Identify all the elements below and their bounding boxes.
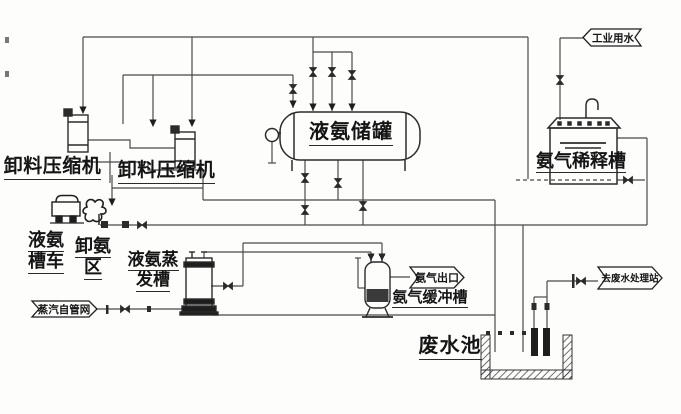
buffer-tank-shape: [362, 255, 393, 317]
to-wastewater-label: 去废水处理站: [601, 273, 659, 285]
submersible-pump-icon: [531, 328, 538, 356]
label-dilution-tank: 氨气稀释槽: [529, 152, 633, 173]
label-buffer-tank: 氨气缓冲槽: [391, 290, 469, 308]
label-evaporator: 液氨蒸 发槽: [121, 251, 185, 292]
industrial-water-label: 工业用水: [592, 32, 634, 45]
scan-artifacts: [5, 37, 9, 77]
compressor-left-shape: [64, 109, 88, 152]
label-compressor-right: 卸料压缩机: [115, 161, 218, 184]
label-wastewater-pool: 废水池: [416, 336, 484, 360]
steam-label: 蒸汽自管网: [38, 303, 91, 316]
level-gauge-icon: [266, 129, 279, 142]
label-compressor-left: 卸料压缩机: [1, 157, 104, 180]
pfd-ammonia-storage-diagram: 工业用水 蒸汽自管网 氨气出口 去废水处理站 卸料压缩机 卸料压缩机 液氨储罐 …: [0, 0, 681, 414]
label-tanker-truck: 液氨 槽车: [23, 231, 69, 274]
label-storage-tank: 液氨储罐: [303, 122, 399, 146]
label-unloading-area: 卸氨 区: [73, 237, 113, 280]
vent-gooseneck-icon: [586, 99, 598, 118]
evaporator-shape: [180, 252, 218, 315]
ammonia-outlet-label: 氨气出口: [415, 271, 459, 285]
submersible-pump-icon: [543, 328, 550, 356]
tanker-truck-icon: [52, 196, 80, 223]
diagram-drawing: 工业用水 蒸汽自管网 氨气出口 去废水处理站: [0, 0, 681, 414]
